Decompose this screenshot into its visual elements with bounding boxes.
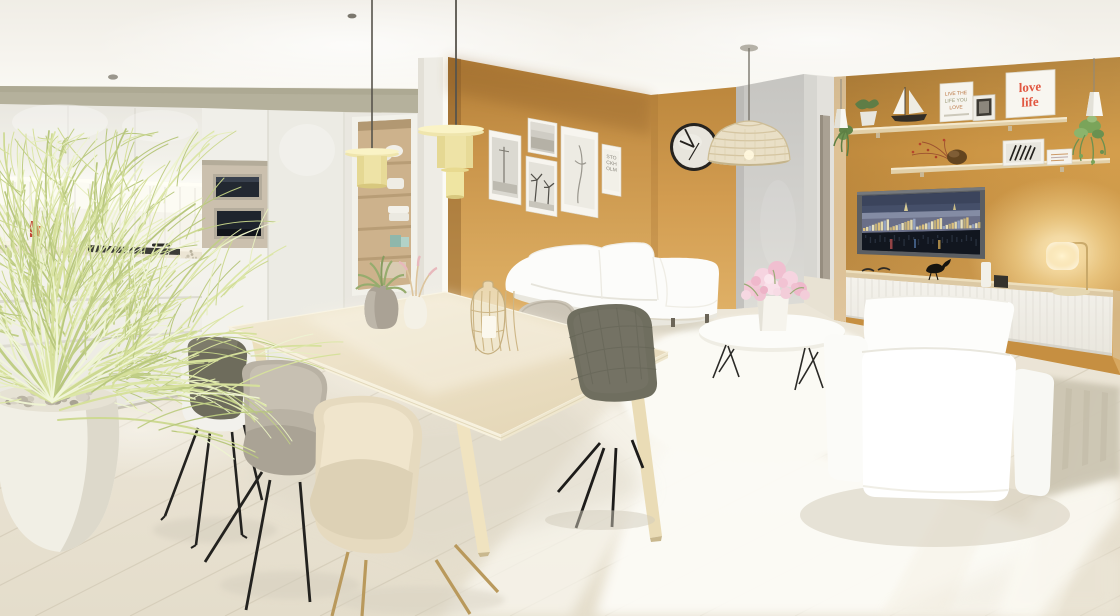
svg-text:love: love bbox=[1019, 79, 1042, 96]
svg-text:LOVE: LOVE bbox=[949, 104, 963, 111]
svg-text:life: life bbox=[1021, 94, 1039, 110]
